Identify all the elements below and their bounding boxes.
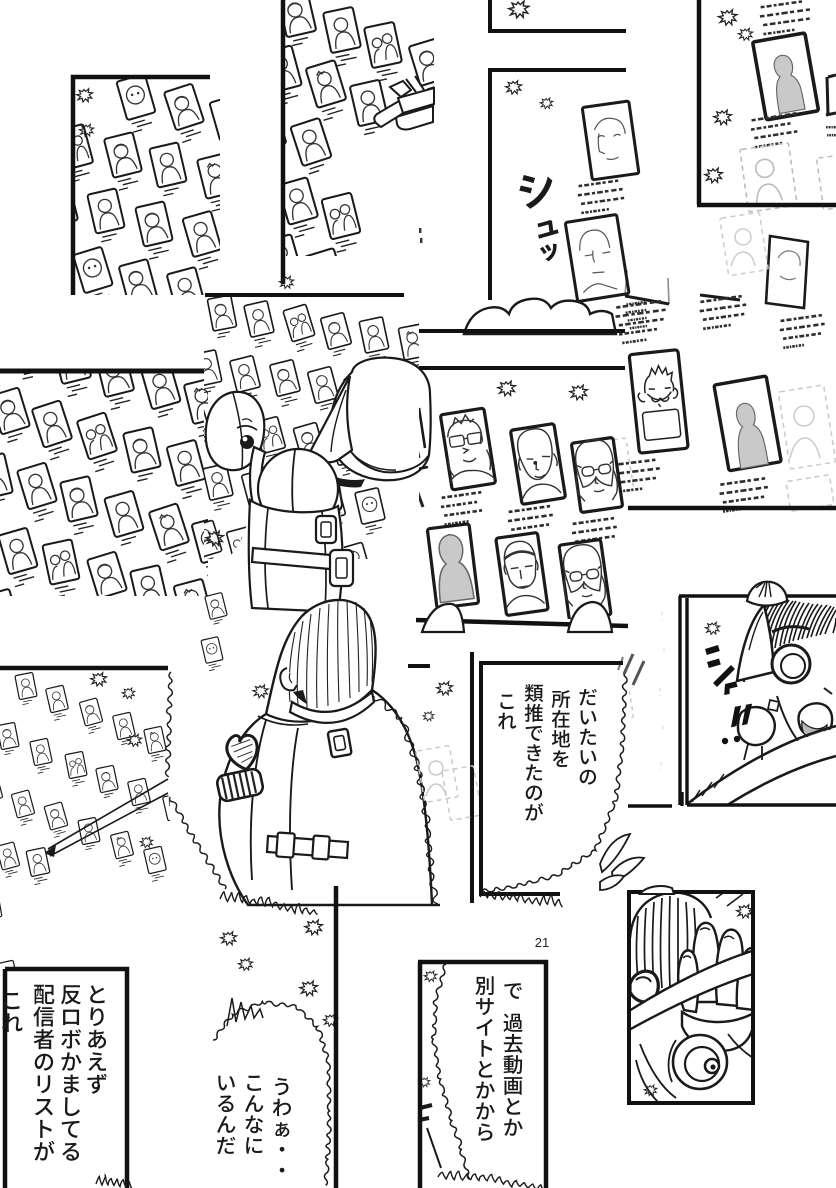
svg-text:21: 21 <box>535 935 549 950</box>
